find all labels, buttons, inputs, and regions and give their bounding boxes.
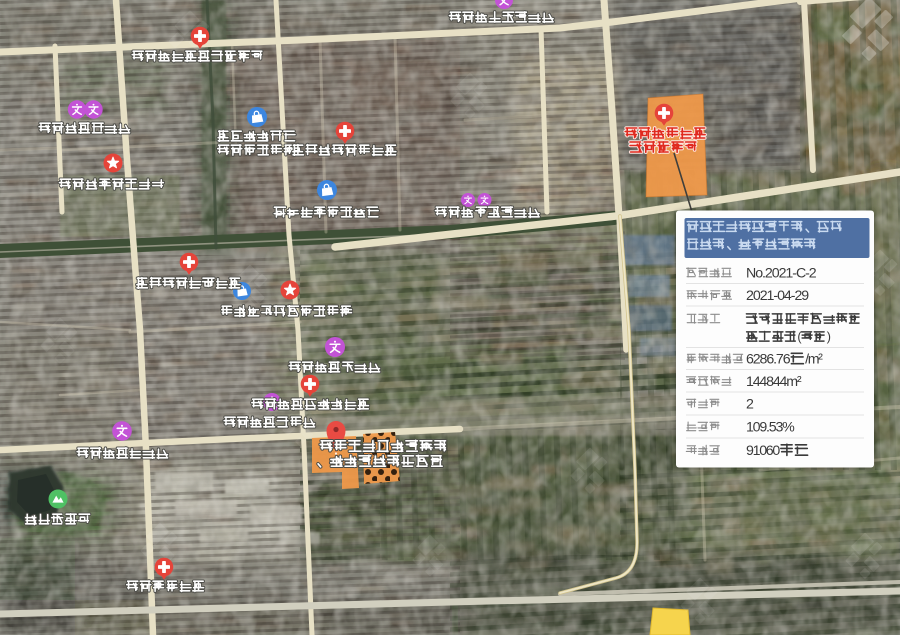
svg-text:91060: 91060 [746,443,780,459]
svg-text:109.53%: 109.53% [746,420,795,436]
svg-text:2: 2 [746,397,754,413]
svg-text:6286.76: 6286.76 [746,352,791,368]
svg-text:No.2021-C-2: No.2021-C-2 [746,266,817,282]
svg-text:/m²: /m² [805,352,823,368]
svg-text:): ) [827,330,831,344]
svg-text:144844m²: 144844m² [746,374,802,390]
svg-text:2021-04-29: 2021-04-29 [746,288,809,304]
